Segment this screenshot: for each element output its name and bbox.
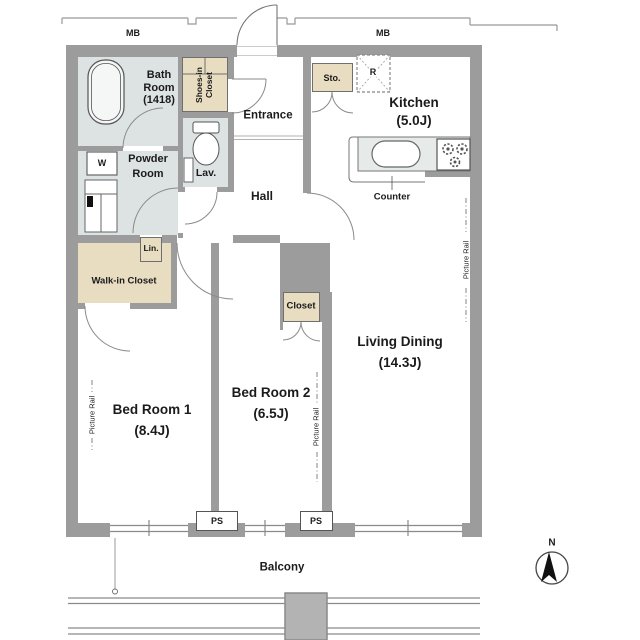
vanity <box>85 180 117 232</box>
bathtub <box>88 60 124 124</box>
kitchen-counter <box>349 137 470 190</box>
mb-label-right: MB <box>376 28 390 38</box>
bedroom-hall-door <box>177 243 233 299</box>
floor-plan: MB MB Bath Room (1418) Shoes-in Closet E… <box>0 0 640 640</box>
room-label-entrance: Entrance <box>243 109 292 122</box>
closet-door-left <box>283 322 301 340</box>
fridge-label: R <box>369 67 378 77</box>
room-label-lav: Lav. <box>196 167 216 179</box>
front-door <box>237 5 277 56</box>
mb-label-left: MB <box>126 28 140 38</box>
room-label-bed1: Bed Room 1 (8.4J) <box>113 399 192 441</box>
room-label-kitchen: Kitchen (5.0J) <box>389 94 439 130</box>
walkin-closet-label: Walk-in Closet <box>91 277 156 288</box>
shoes-closet-label: Shoes-in Closet <box>194 67 214 103</box>
linen-label: Lin. <box>143 244 158 254</box>
compass <box>536 552 568 584</box>
room-label-living: Living Dining (14.3J) <box>357 331 443 373</box>
balcony-label: Balcony <box>260 561 305 574</box>
stove <box>437 139 470 170</box>
walkin-door <box>85 306 130 351</box>
picture-rail-label-bed2: Picture Rail <box>312 408 321 446</box>
sto-door-right <box>332 92 353 113</box>
living-door <box>307 193 354 240</box>
powder-door <box>133 188 178 233</box>
room-label-powder: Powder Room <box>128 152 168 182</box>
ps-label-2: PS <box>310 516 322 526</box>
north-label: N <box>548 537 555 549</box>
closet-door-right <box>301 322 320 341</box>
sto-door-left <box>312 92 332 112</box>
closet-label: Closet <box>286 302 315 313</box>
bath-door <box>123 108 163 148</box>
windows <box>110 520 462 536</box>
washer-label: W <box>98 158 107 168</box>
room-label-bed2: Bed Room 2 (6.5J) <box>232 382 311 424</box>
room-label-bath: Bath Room (1418) <box>143 69 175 107</box>
sink <box>372 141 420 167</box>
structural-column <box>285 593 327 640</box>
balcony-divider-end <box>113 589 118 594</box>
picture-rail-label-bed1: Picture Rail <box>88 396 97 434</box>
ps-label-1: PS <box>211 516 223 526</box>
sto-label: Sto. <box>324 73 341 83</box>
counter-label: Counter <box>374 193 410 204</box>
shoes-closet-door <box>232 79 266 113</box>
entrance-step <box>234 136 303 140</box>
plan-linework <box>0 0 640 640</box>
lav-door <box>185 192 217 224</box>
balcony-railing <box>68 598 480 634</box>
picture-rail-label-living: Picture Rail <box>462 241 471 279</box>
room-label-hall: Hall <box>251 190 273 204</box>
